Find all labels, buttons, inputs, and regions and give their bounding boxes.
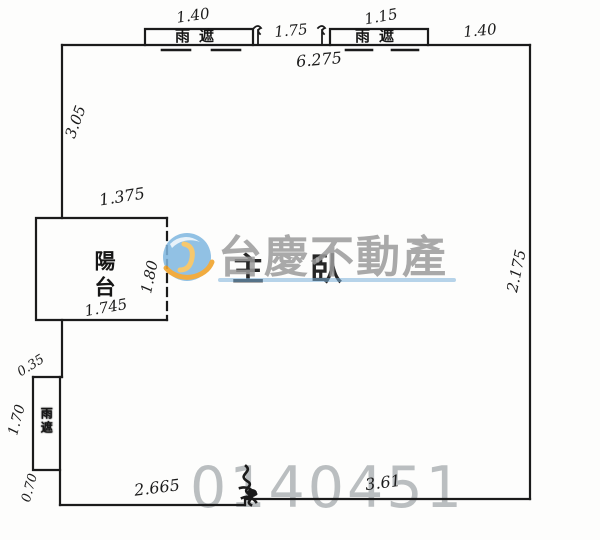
dim-bottom-right: 3.61 <box>364 473 401 493</box>
dim-top-middle: 1.75 <box>274 22 309 40</box>
dim-top-shelter-right: 1.15 <box>363 7 399 28</box>
dim-balcony-right: 1.80 <box>139 259 161 295</box>
brand-logo-icon <box>160 230 216 286</box>
dim-top-shelter-left: 1.40 <box>175 6 210 26</box>
dim-left-lower: 0.70 <box>20 472 40 503</box>
rain-shelter-label-top-right: 雨遮 <box>355 29 403 45</box>
dim-left-shelter-height: 1.70 <box>6 403 28 437</box>
balcony-label: 陽台 <box>93 250 115 302</box>
brand-name: 台慶不動產 <box>218 236 448 280</box>
dim-bottom-left: 2.665 <box>133 477 180 498</box>
floor-plan-page: 0140451 <box>0 0 600 540</box>
dim-top-right-span: 1.40 <box>463 22 498 40</box>
dim-top-total: 6.275 <box>295 50 342 70</box>
brand-watermark: 台慶不動產 <box>160 228 470 290</box>
dim-left-upper: 3.05 <box>63 104 89 141</box>
dim-balcony-bottom: 1.745 <box>84 297 129 319</box>
dim-right-side: 2.175 <box>505 248 529 293</box>
rain-shelter-label-lower: 雨遮 <box>40 407 53 435</box>
dim-left-jog: 0.35 <box>15 353 46 379</box>
dim-balcony-top: 1.375 <box>98 186 146 209</box>
rain-shelter-label-top-left: 雨遮 <box>175 29 223 45</box>
